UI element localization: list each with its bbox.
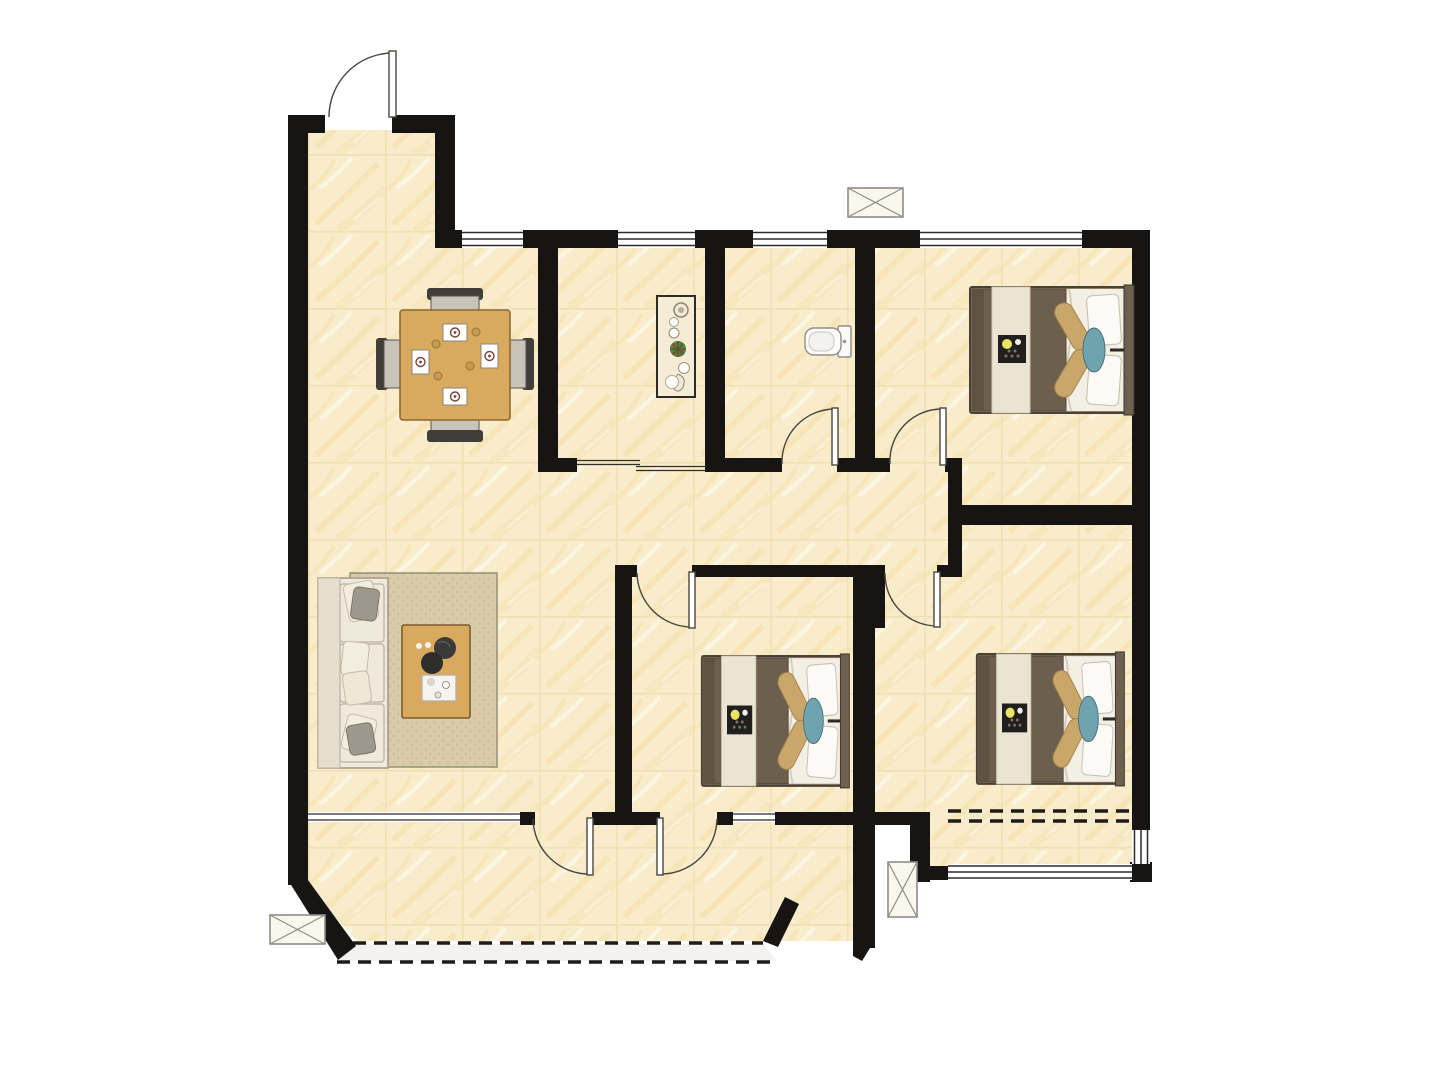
window-living-balcony: [308, 812, 520, 822]
potted-plant: [670, 341, 686, 357]
bed-bottom-right: [977, 652, 1125, 786]
window-kitchen: [618, 230, 695, 248]
balcony-main-edge: [337, 943, 777, 962]
window-bedroom-top: [920, 230, 1082, 248]
ac-unit-bottom-middle: [888, 862, 917, 917]
dining-set: [376, 288, 534, 442]
window-right-side: [1132, 830, 1150, 864]
floorplan-canvas: [0, 0, 1440, 1080]
coffee-table: [402, 625, 470, 718]
balcony-right-floor: [928, 820, 1138, 868]
kitchen-console: [657, 296, 695, 397]
sofa: [318, 578, 388, 768]
window-dining: [462, 230, 523, 248]
window-bathroom: [753, 230, 827, 248]
apartment-floorplan: [0, 0, 1440, 1080]
bed-middle: [702, 654, 850, 788]
ac-unit-top: [848, 188, 903, 217]
entry-door: [329, 51, 396, 117]
window-balcony-right: [948, 864, 1132, 880]
bed-top-right: [970, 285, 1134, 415]
toilet: [805, 326, 851, 357]
ac-unit-bottom-left: [270, 915, 325, 944]
window-bedroom-balcony: [733, 812, 775, 822]
